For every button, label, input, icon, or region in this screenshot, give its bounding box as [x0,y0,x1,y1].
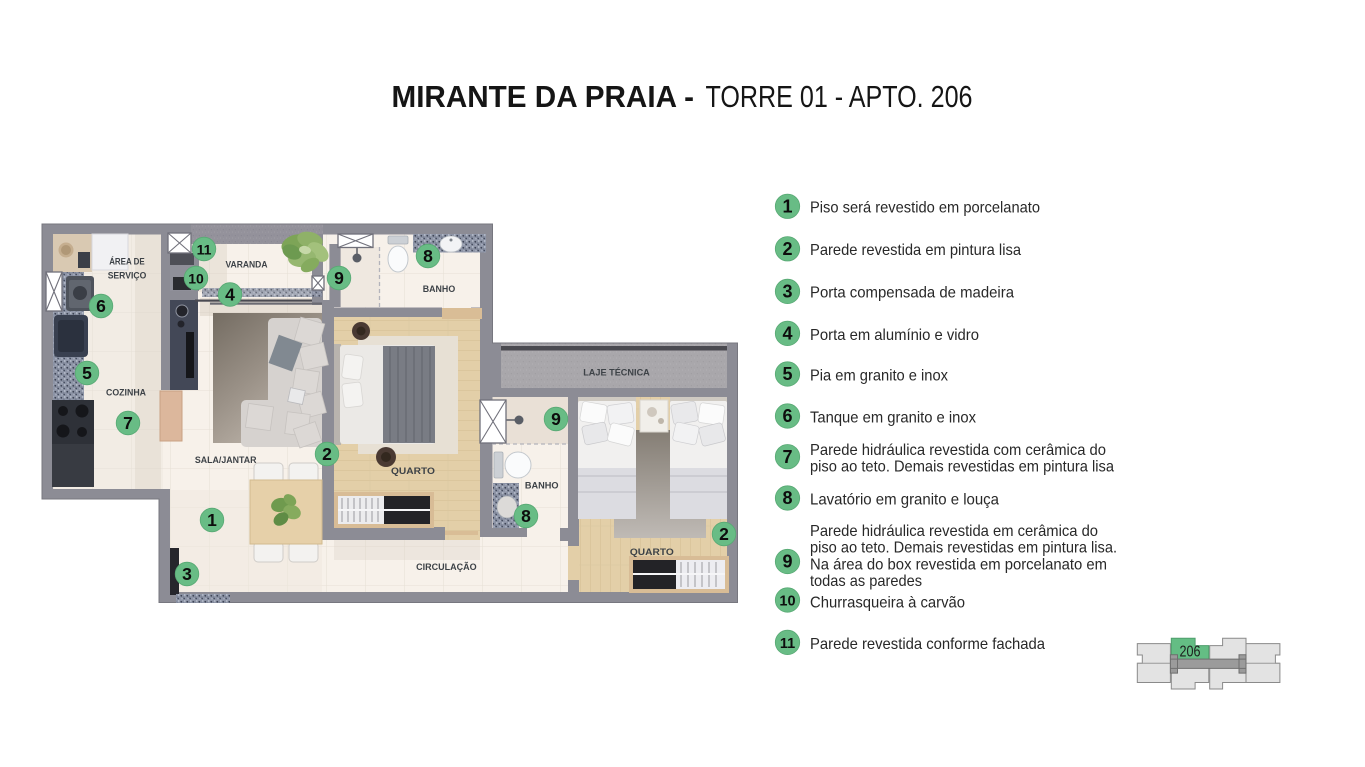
svg-text:piso ao teto. Demais revestida: piso ao teto. Demais revestidas em pintu… [810,540,1117,557]
svg-text:2: 2 [782,239,792,259]
svg-text:4: 4 [782,324,792,344]
svg-text:Porta compensada de madeira: Porta compensada de madeira [810,285,1014,302]
svg-text:206: 206 [1180,644,1201,661]
svg-text:2: 2 [719,524,729,544]
svg-text:10: 10 [188,271,204,287]
svg-text:5: 5 [782,364,792,384]
svg-text:10: 10 [779,594,795,610]
svg-text:SERVIÇO: SERVIÇO [108,271,147,282]
svg-text:6: 6 [782,406,792,426]
svg-text:5: 5 [82,363,92,383]
svg-text:Piso será revestido em porcela: Piso será revestido em porcelanato [810,200,1040,217]
svg-text:Na área do box revestida em po: Na área do box revestida em porcelanato … [810,556,1107,573]
svg-text:QUARTO: QUARTO [391,466,435,477]
svg-text:Porta em alumínio e vidro: Porta em alumínio e vidro [810,327,979,344]
svg-text:2: 2 [322,444,332,464]
svg-text:Churrasqueira à carvão: Churrasqueira à carvão [810,594,965,611]
svg-text:8: 8 [521,506,531,526]
svg-text:LAJE TÉCNICA: LAJE TÉCNICA [583,367,650,379]
svg-text:9: 9 [334,268,344,288]
svg-text:8: 8 [782,488,792,508]
svg-text:piso ao teto. Demais revestida: piso ao teto. Demais revestidas em pintu… [810,459,1114,476]
svg-text:todas as paredes: todas as paredes [810,573,922,590]
svg-text:TORRE 01 - APTO. 206: TORRE 01 - APTO. 206 [706,79,973,114]
svg-text:4: 4 [225,285,235,305]
svg-text:MIRANTE DA PRAIA -: MIRANTE DA PRAIA - [392,79,695,114]
svg-text:Pia em granito e inox: Pia em granito e inox [810,367,948,384]
svg-text:3: 3 [782,282,792,302]
svg-text:9: 9 [551,409,561,429]
svg-text:1: 1 [782,197,792,217]
svg-text:11: 11 [197,242,212,258]
svg-text:COZINHA: COZINHA [106,388,146,399]
svg-text:CIRCULAÇÃO: CIRCULAÇÃO [416,562,477,573]
svg-text:Parede hidráulica revestida co: Parede hidráulica revestida com cerâmica… [810,442,1106,459]
svg-text:8: 8 [423,246,433,266]
svg-text:Parede revestida conforme fach: Parede revestida conforme fachada [810,636,1045,653]
svg-text:QUARTO: QUARTO [630,547,674,558]
svg-text:Parede revestida em pintura li: Parede revestida em pintura lisa [810,242,1021,259]
svg-text:Tanque em granito e inox: Tanque em granito e inox [810,409,976,426]
svg-text:7: 7 [123,413,133,433]
svg-text:Parede hidráulica revestida em: Parede hidráulica revestida em cerâmica … [810,523,1098,540]
svg-text:6: 6 [96,296,106,316]
svg-text:BANHO: BANHO [525,481,559,492]
svg-text:VARANDA: VARANDA [226,260,268,271]
svg-text:3: 3 [182,564,192,584]
svg-text:BANHO: BANHO [423,284,456,295]
svg-text:7: 7 [782,447,792,467]
svg-text:1: 1 [207,510,217,530]
svg-text:9: 9 [782,552,792,572]
svg-text:Lavatório em granito e louça: Lavatório em granito e louça [810,491,999,508]
svg-text:11: 11 [780,636,795,652]
svg-text:ÁREA DE: ÁREA DE [109,255,145,267]
svg-text:SALA/JANTAR: SALA/JANTAR [195,455,257,466]
